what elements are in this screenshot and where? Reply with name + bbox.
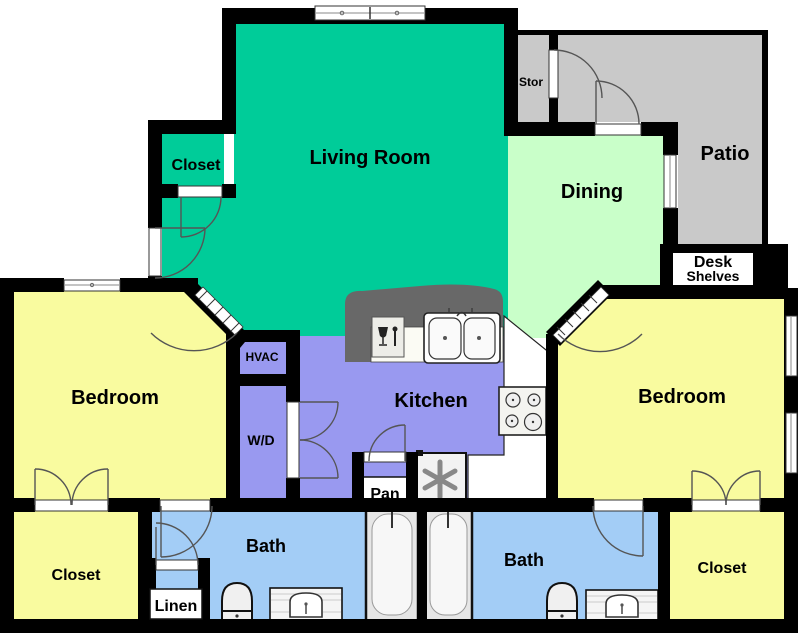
linen-door-sill bbox=[156, 560, 198, 570]
closet-bottom-left-label: Closet bbox=[52, 567, 102, 584]
bath-left-door-sill bbox=[160, 500, 210, 511]
hvac-label: HVAC bbox=[245, 350, 278, 364]
living-room-window bbox=[315, 6, 425, 20]
bath-right-label: Bath bbox=[504, 550, 544, 570]
closet-bottom-left-floor bbox=[12, 505, 142, 621]
bedroom-left-window bbox=[64, 280, 120, 291]
bath-left-label: Bath bbox=[246, 536, 286, 556]
bath-right-door-sill bbox=[594, 500, 643, 511]
closet-top-left-door-sill bbox=[178, 186, 222, 197]
stor-door-sill bbox=[549, 50, 558, 98]
vanity-right bbox=[586, 590, 658, 620]
patio-label: Patio bbox=[701, 143, 750, 165]
refrigerator-icon bbox=[414, 450, 466, 506]
stove bbox=[499, 387, 546, 435]
stor-label: Stor bbox=[519, 75, 543, 89]
floor-plan-canvas: Living Room Dining Patio Stor Closet Bed… bbox=[0, 0, 800, 633]
bedroom-right-window-1 bbox=[786, 316, 797, 376]
bathtub-left bbox=[366, 506, 418, 621]
linen-label: Linen bbox=[155, 598, 198, 615]
closet-bottom-right-label: Closet bbox=[698, 560, 748, 577]
vanity-left bbox=[270, 588, 342, 620]
dining-window bbox=[664, 155, 676, 208]
living-room-label: Living Room bbox=[309, 147, 430, 169]
dining-label: Dining bbox=[561, 181, 623, 203]
wd-door-sill bbox=[287, 402, 299, 478]
wd-label: W/D bbox=[247, 432, 274, 448]
closet-top-left-label: Closet bbox=[172, 157, 222, 174]
patio-dining-door-sill bbox=[595, 124, 641, 135]
shelves-label: Shelves bbox=[687, 268, 740, 284]
kitchen-label: Kitchen bbox=[394, 390, 467, 412]
entry-door-sill bbox=[149, 228, 161, 276]
bathtub-right bbox=[425, 506, 472, 621]
toilet-left bbox=[222, 583, 252, 620]
floor-plan: Living Room Dining Patio Stor Closet Bed… bbox=[0, 0, 800, 633]
bedroom-right-window-2 bbox=[786, 413, 797, 473]
toilet-right bbox=[547, 583, 577, 620]
bedroom-right-label: Bedroom bbox=[638, 386, 726, 408]
kitchen-sink bbox=[424, 308, 500, 363]
dishwasher-icon bbox=[372, 317, 404, 357]
pan-label: Pan bbox=[370, 486, 399, 503]
bedroom-left-label: Bedroom bbox=[71, 387, 159, 409]
